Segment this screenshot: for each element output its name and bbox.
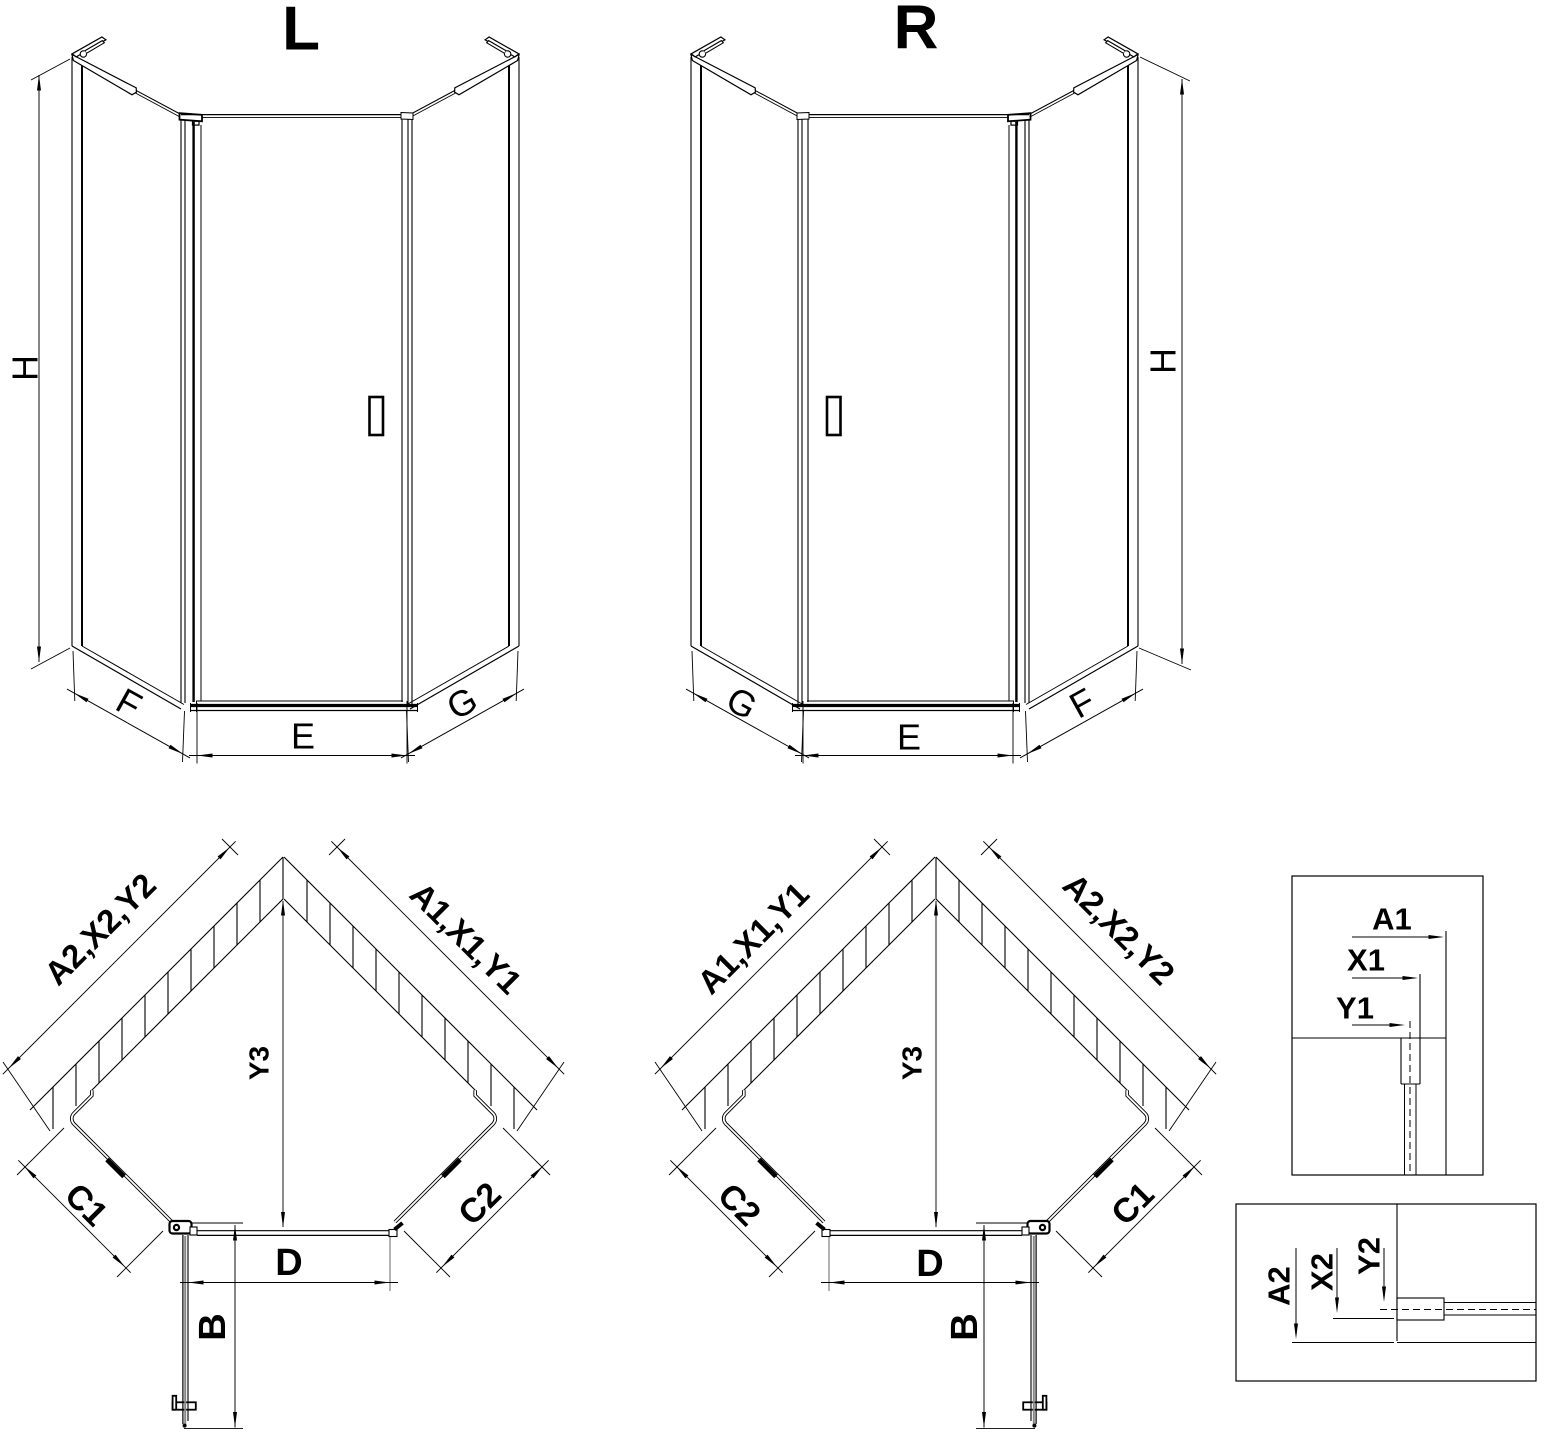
svg-text:X2: X2 <box>1305 1253 1340 1291</box>
svg-text:L: L <box>282 0 320 64</box>
svg-text:B: B <box>192 1313 234 1340</box>
svg-text:H: H <box>1143 348 1184 374</box>
svg-text:R: R <box>894 0 939 63</box>
svg-text:B: B <box>944 1313 986 1340</box>
svg-text:Y3: Y3 <box>244 1046 275 1080</box>
svg-text:D: D <box>275 1242 302 1284</box>
svg-text:A1: A1 <box>1372 902 1412 937</box>
svg-text:Y1: Y1 <box>1336 991 1374 1026</box>
svg-text:H: H <box>5 355 46 381</box>
svg-text:E: E <box>897 717 921 758</box>
svg-text:X1: X1 <box>1347 943 1385 978</box>
svg-text:Y2: Y2 <box>1352 1237 1387 1275</box>
svg-text:D: D <box>916 1243 943 1285</box>
svg-text:Y3: Y3 <box>897 1046 928 1080</box>
svg-text:E: E <box>291 716 315 757</box>
svg-text:A2: A2 <box>1262 1266 1297 1306</box>
